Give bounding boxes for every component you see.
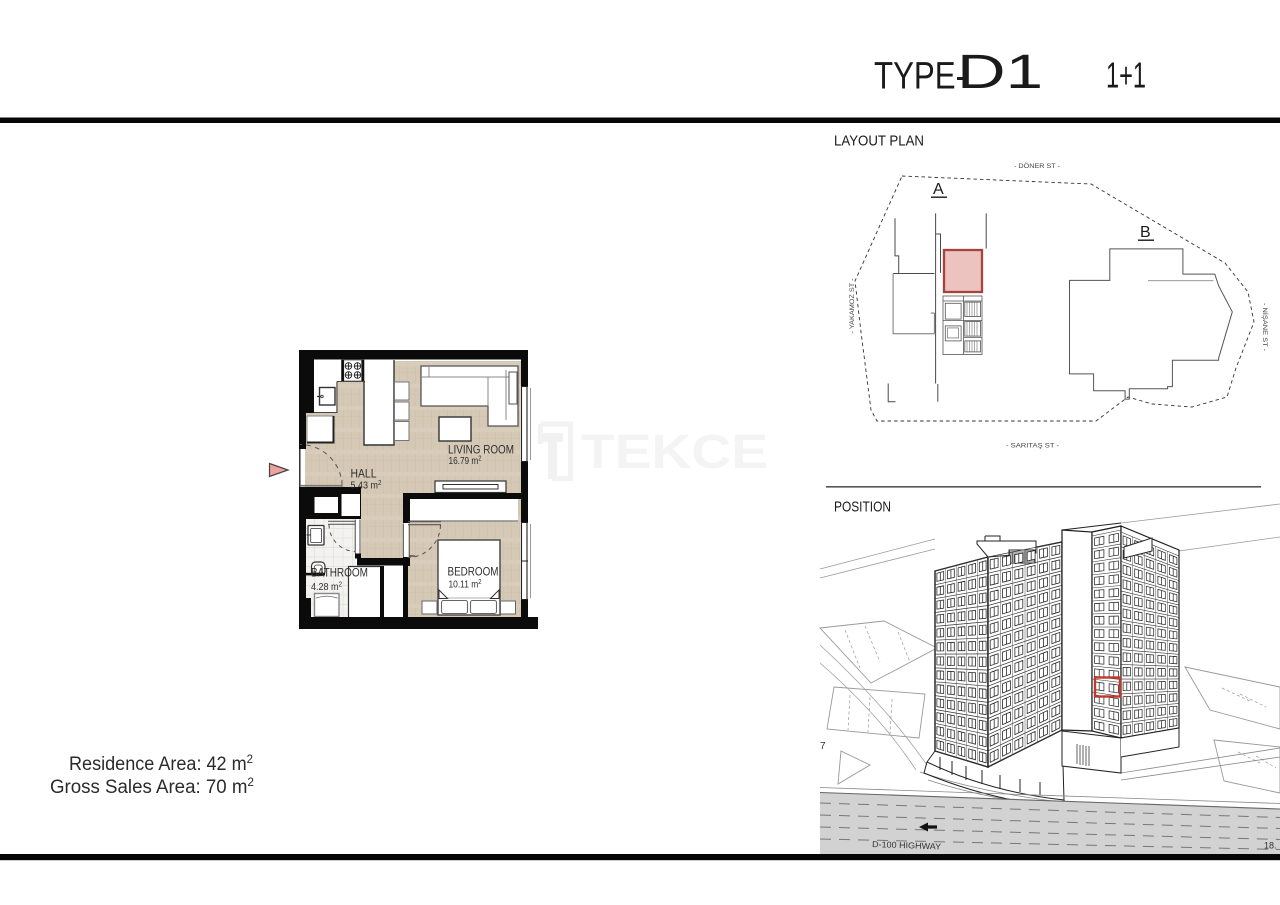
svg-text:BATHROOM: BATHROOM bbox=[311, 568, 368, 580]
svg-text:D1: D1 bbox=[957, 46, 1043, 99]
svg-text:10.11 m2: 10.11 m2 bbox=[449, 579, 482, 591]
svg-text:1+1: 1+1 bbox=[1106, 55, 1146, 96]
svg-text:16.79 m2: 16.79 m2 bbox=[449, 456, 482, 468]
svg-text:TEKCE: TEKCE bbox=[581, 426, 768, 479]
svg-text:7: 7 bbox=[820, 741, 826, 752]
svg-text:A: A bbox=[933, 181, 944, 198]
svg-text:TYPE-: TYPE- bbox=[874, 56, 966, 98]
svg-text:5.43 m2: 5.43 m2 bbox=[351, 480, 382, 492]
svg-text:HALL: HALL bbox=[351, 469, 378, 481]
svg-text:- YAKAMOZ ST -: - YAKAMOZ ST - bbox=[849, 279, 856, 334]
svg-text:Gross Sales Area: 70 m2: Gross Sales Area: 70 m2 bbox=[50, 775, 254, 798]
svg-text:LAYOUT PLAN: LAYOUT PLAN bbox=[834, 134, 924, 150]
svg-text:Residence Area: 42 m2: Residence Area: 42 m2 bbox=[69, 752, 253, 775]
svg-text:- NİŞANE ST -: - NİŞANE ST - bbox=[1261, 303, 1270, 351]
svg-text:POSITION: POSITION bbox=[834, 499, 891, 516]
svg-text:4.28 m2: 4.28 m2 bbox=[311, 582, 342, 594]
svg-text:- SARITAŞ ST -: - SARITAŞ ST - bbox=[1006, 443, 1059, 450]
svg-text:BEDROOM: BEDROOM bbox=[448, 567, 499, 579]
svg-text:- DÖNER ST -: - DÖNER ST - bbox=[1014, 162, 1060, 170]
svg-text:18.: 18. bbox=[1264, 841, 1277, 851]
svg-text:B: B bbox=[1140, 224, 1151, 241]
